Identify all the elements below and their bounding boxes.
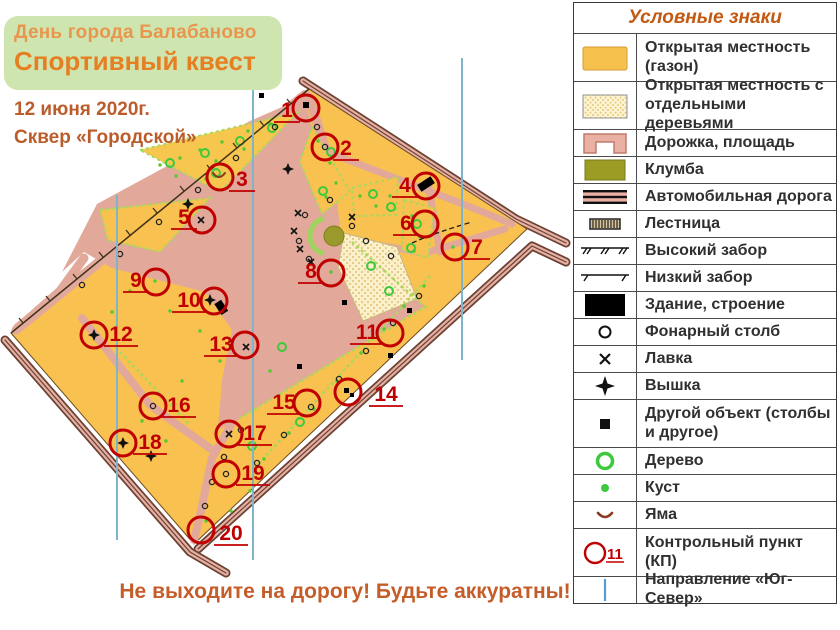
- legend-row-other-object: Другой объект (столбы и другое): [574, 399, 836, 447]
- legend-label: Высокий забор: [637, 241, 836, 262]
- open-ground-icon: [579, 43, 631, 73]
- legend-label: Вышка: [637, 376, 836, 397]
- control-point-label: 4: [399, 174, 411, 197]
- control-point-label: 17: [243, 422, 266, 445]
- legend-row-flowerbed: Клумба: [574, 156, 836, 183]
- control-point-label: 1: [281, 99, 293, 122]
- legend-label: Лестница: [637, 214, 836, 235]
- legend-label: Открытая местность с отдельными деревьям…: [637, 76, 836, 135]
- legend-row-open-ground: Открытая местность (газон): [574, 33, 836, 81]
- legend-label: Направление «Юг-Север»: [637, 570, 836, 610]
- event-date: 12 июня 2020г.: [14, 99, 150, 121]
- legend-row-bench: Лавка: [574, 345, 836, 372]
- control-point-label: 10: [177, 289, 200, 312]
- open-ground-trees-icon: [579, 91, 631, 121]
- legend-label: Яма: [637, 505, 836, 526]
- building-icon: [579, 292, 631, 318]
- north-south-icon: [579, 577, 631, 603]
- safety-warning: Не выходите на дорогу! Будьте аккуратны!: [90, 580, 600, 604]
- slide: { "header": { "line1": "День города Бала…: [0, 0, 840, 630]
- path-icon: [579, 130, 631, 156]
- control-point-label: 8: [305, 260, 317, 283]
- legend-label: Контрольный пункт (КП): [637, 533, 836, 573]
- control-point-label: 15: [272, 391, 296, 414]
- event-title-line2: Спортивный квест: [14, 46, 256, 77]
- stairs-icon: [579, 211, 631, 237]
- legend-row-high-fence: Высокий забор: [574, 237, 836, 264]
- legend-row-building: Здание, строение: [574, 291, 836, 318]
- legend-label: Фонарный столб: [637, 322, 836, 343]
- legend-row-path: Дорожка, площадь: [574, 129, 836, 156]
- legend-label: Автомобильная дорога: [637, 187, 836, 208]
- legend-label: Дерево: [637, 451, 836, 472]
- legend-row-open-ground-trees: Открытая местность с отдельными деревьям…: [574, 81, 836, 129]
- bush-icon: [579, 475, 631, 501]
- control-point-label: 14: [374, 383, 398, 406]
- control-point-label: 12: [109, 323, 132, 346]
- flowerbed-icon: [579, 157, 631, 183]
- legend-label: Открытая местность (газон): [637, 38, 836, 78]
- legend-row-bush: Куст: [574, 474, 836, 501]
- legend-panel: Условные знаки Открытая местность (газон…: [573, 2, 837, 604]
- legend-label: Дорожка, площадь: [637, 133, 836, 154]
- control-point-label: 5: [178, 206, 190, 229]
- event-title-line1: День города Балабаново: [14, 22, 257, 44]
- legend-row-control-point: 11 Контрольный пункт (КП): [574, 528, 836, 576]
- pit-icon: [579, 502, 631, 528]
- lamppost-icon: [579, 319, 631, 345]
- legend-label: Куст: [637, 478, 836, 499]
- park-map: 1234567891011121314151617181920: [0, 0, 575, 630]
- legend-row-pit: Яма: [574, 501, 836, 528]
- bench-icon: [579, 346, 631, 372]
- legend-row-car-road: Автомобильная дорога: [574, 183, 836, 210]
- legend-label: Клумба: [637, 160, 836, 181]
- control-point-label: 7: [471, 236, 483, 259]
- control-point-label: 16: [167, 394, 190, 417]
- legend-row-low-fence: Низкий забор: [574, 264, 836, 291]
- flowerbed: [324, 226, 344, 246]
- control-point-label: 13: [209, 333, 232, 356]
- legend-label: Другой объект (столбы и другое): [637, 404, 836, 444]
- legend-row-tree: Дерево: [574, 447, 836, 474]
- control-point-label: 20: [219, 522, 242, 545]
- control-point-label: 6: [400, 212, 412, 235]
- tree-icon: [579, 448, 631, 474]
- legend-row-lamppost: Фонарный столб: [574, 318, 836, 345]
- control-point-label: 3: [236, 168, 248, 191]
- high-fence-icon: [579, 238, 631, 264]
- legend-row-stairs: Лестница: [574, 210, 836, 237]
- svg-text:11: 11: [607, 546, 623, 563]
- car-road-icon: [579, 184, 631, 210]
- legend-label: Низкий забор: [637, 268, 836, 289]
- low-fence-icon: [579, 265, 631, 291]
- control-point-label: 18: [138, 431, 162, 454]
- event-venue: Сквер «Городской»: [14, 127, 197, 149]
- legend-title: Условные знаки: [574, 3, 836, 33]
- legend-label: Здание, строение: [637, 295, 836, 316]
- tower-icon: [579, 373, 631, 399]
- control-point-label: 9: [130, 269, 142, 292]
- control-point-label: 19: [241, 462, 264, 485]
- control-point-label: 2: [340, 137, 352, 160]
- legend-label: Лавка: [637, 349, 836, 370]
- legend-row-tower: Вышка: [574, 372, 836, 399]
- other-object-icon: [579, 411, 631, 437]
- legend-row-direction: Направление «Юг-Север»: [574, 576, 836, 603]
- control-point-icon: 11: [579, 538, 631, 568]
- control-point-label: 11: [356, 321, 379, 344]
